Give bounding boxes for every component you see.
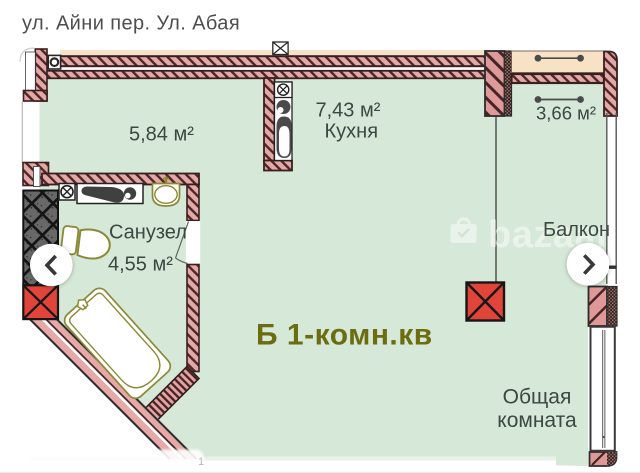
svg-text:комната: комната [497,409,577,432]
svg-text:3,66 м²: 3,66 м² [536,103,596,124]
svg-text:Кухня: Кухня [325,121,379,143]
svg-text:Балкон: Балкон [543,219,610,241]
svg-text:ул. Айни пер. Ул. Абая: ул. Айни пер. Ул. Абая [22,13,240,35]
svg-text:4,55 м²: 4,55 м² [108,254,173,276]
svg-text:Общая: Общая [503,386,572,409]
svg-text:7,43 м²: 7,43 м² [316,100,381,122]
svg-text:1: 1 [198,456,204,468]
svg-text:Санузел: Санузел [109,222,187,244]
svg-text:5,84 м²: 5,84 м² [129,124,194,146]
svg-text:Б 1-комн.кв: Б 1-комн.кв [256,319,433,352]
